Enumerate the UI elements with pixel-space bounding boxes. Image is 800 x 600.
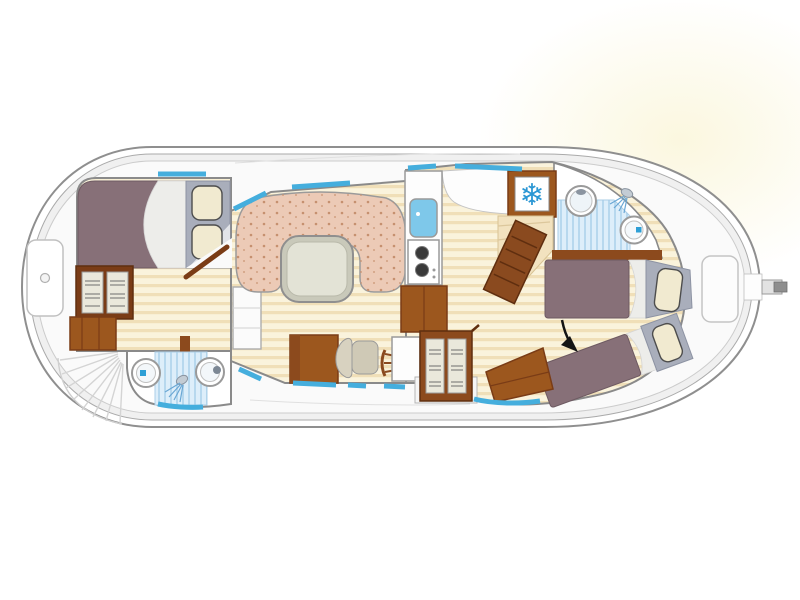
saloon-cabinet [233,287,261,349]
toilet-aft [621,217,648,244]
window [408,166,436,168]
galley-sink [410,199,437,237]
floorplan-drawing: ❄ [0,0,800,600]
freezer-snowflake-icon: ❄ [519,178,544,213]
wardrobe-central [415,325,479,403]
freezer: ❄ [508,171,556,217]
washbasin-aft [566,186,596,216]
bathroom-wall-stub [180,336,190,352]
single-bed-aft-1 [545,260,692,318]
boat-floorplan-canvas: ❄ [0,0,800,600]
instrument-panel [392,337,420,381]
window [293,383,336,385]
window [455,166,522,169]
aft-bathroom-wall [552,250,662,260]
galley-cabinet [401,286,447,332]
toilet-forward [132,359,160,387]
bow-locker-handle [41,274,50,283]
washbasin-forward [196,358,224,386]
forward-cabinet [70,317,116,350]
helm-console [290,335,338,383]
window [348,385,366,386]
wardrobe-forward [76,266,133,319]
rudder-tiller [744,274,787,300]
helm-seat [336,338,378,377]
dinette-table [281,236,353,302]
stove [408,240,439,284]
window [384,386,405,387]
pillow [192,186,222,220]
stern-seat [702,256,738,322]
